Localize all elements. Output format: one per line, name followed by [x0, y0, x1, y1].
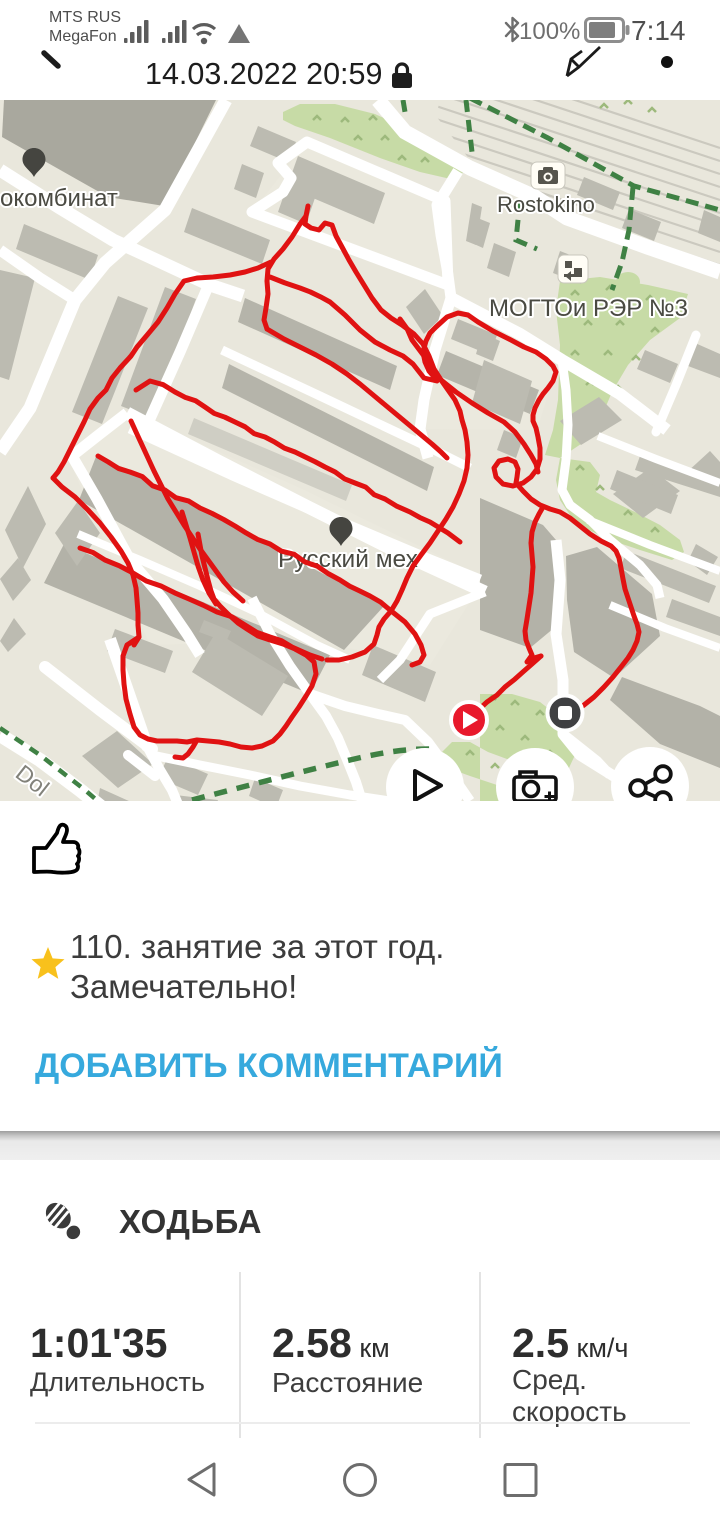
- svg-text:Rostokino: Rostokino: [497, 192, 595, 217]
- svg-text:окомбинат: окомбинат: [0, 185, 118, 212]
- svg-text:МОГТОи РЭР №3: МОГТОи РЭР №3: [489, 295, 688, 322]
